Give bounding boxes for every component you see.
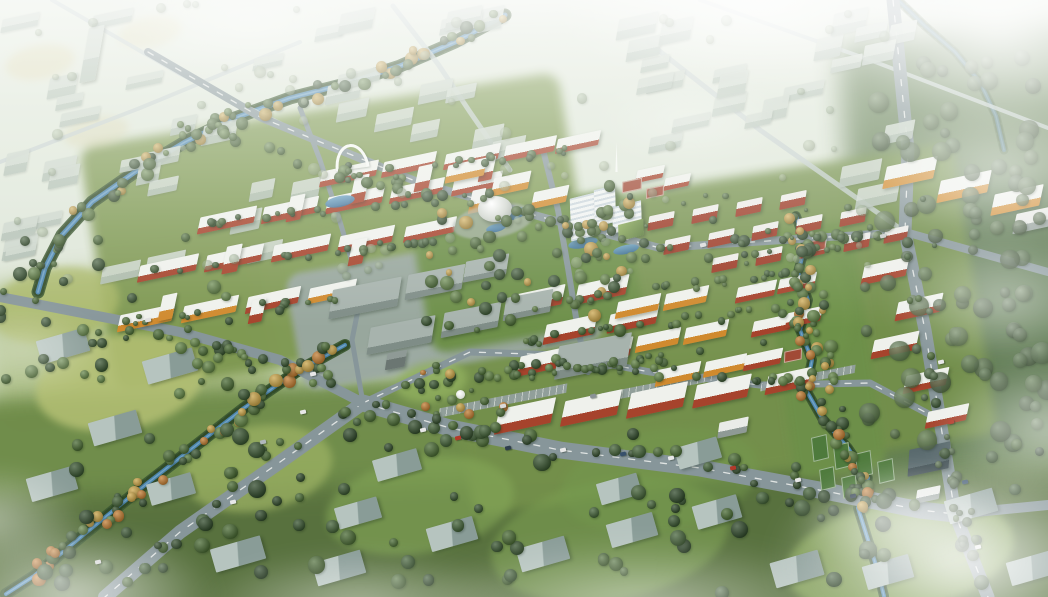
- tree: [229, 254, 239, 264]
- tree: [656, 244, 665, 253]
- tree: [616, 365, 622, 371]
- tree: [229, 133, 237, 141]
- tree: [639, 238, 649, 248]
- tree: [746, 306, 753, 313]
- tree: [446, 269, 452, 275]
- tree: [500, 127, 511, 138]
- tree: [356, 172, 362, 178]
- tree: [650, 364, 658, 372]
- tree: [795, 263, 805, 273]
- tree: [269, 374, 283, 388]
- tree: [464, 409, 474, 419]
- tree: [632, 445, 645, 458]
- tree: [864, 262, 870, 268]
- tree: [301, 98, 307, 104]
- tree: [198, 346, 208, 356]
- fog-cloud: [590, 75, 790, 165]
- tree: [474, 504, 483, 513]
- tree: [72, 439, 84, 451]
- tree: [200, 437, 208, 445]
- tree: [376, 181, 385, 190]
- tree: [305, 300, 310, 305]
- tree: [499, 181, 509, 191]
- tree: [224, 108, 232, 116]
- tree: [309, 379, 317, 387]
- intersection-north-stub: [352, 300, 363, 403]
- tree: [467, 298, 475, 306]
- tree: [493, 249, 506, 262]
- tree: [531, 359, 541, 369]
- tree: [401, 381, 410, 390]
- tree: [578, 327, 586, 335]
- tree: [435, 395, 441, 401]
- tree: [389, 538, 398, 547]
- tree: [856, 242, 862, 248]
- tree: [550, 330, 559, 339]
- tree: [652, 283, 660, 291]
- tree: [421, 402, 430, 411]
- tree: [756, 492, 768, 504]
- fog-cloud: [190, 550, 530, 597]
- tree: [632, 368, 639, 375]
- tree: [371, 202, 380, 211]
- tree: [589, 507, 600, 518]
- tree: [806, 350, 815, 359]
- tree: [601, 238, 610, 247]
- tree: [795, 307, 804, 316]
- tree: [469, 388, 474, 393]
- tree: [127, 492, 136, 501]
- tree: [497, 292, 507, 302]
- tree: [795, 336, 805, 346]
- tree: [305, 254, 312, 261]
- tree: [839, 406, 846, 413]
- tree: [448, 98, 455, 105]
- tree: [241, 354, 248, 361]
- tree: [0, 288, 7, 295]
- tree: [340, 530, 356, 546]
- tree: [459, 216, 472, 229]
- tree: [447, 395, 457, 405]
- tree: [577, 93, 587, 103]
- tree: [364, 410, 376, 422]
- tree: [552, 248, 562, 258]
- tree: [790, 236, 794, 240]
- tree: [483, 231, 496, 244]
- tree: [494, 374, 502, 382]
- tree: [238, 389, 250, 401]
- tree: [276, 438, 284, 446]
- tree: [603, 253, 610, 260]
- tree: [414, 378, 425, 389]
- tree: [158, 475, 168, 485]
- tree: [332, 297, 338, 303]
- tree: [314, 206, 321, 213]
- tree: [513, 371, 521, 379]
- fog-cloud: [0, 465, 90, 575]
- tree: [768, 377, 775, 384]
- tree: [552, 291, 562, 301]
- tree: [255, 510, 267, 522]
- tree: [692, 372, 701, 381]
- tree: [222, 524, 237, 539]
- tree: [227, 481, 238, 492]
- tree: [727, 311, 735, 319]
- tree: [500, 164, 511, 175]
- tree: [744, 261, 749, 266]
- tree: [259, 108, 272, 121]
- tree: [421, 316, 431, 326]
- tree: [141, 168, 153, 180]
- tree: [185, 315, 190, 320]
- tree: [273, 101, 283, 111]
- tree: [133, 321, 138, 326]
- tree: [859, 403, 879, 423]
- tree: [647, 500, 656, 509]
- tree: [136, 314, 142, 320]
- tree: [299, 116, 308, 125]
- tree: [391, 201, 400, 210]
- tree: [588, 297, 594, 303]
- tree: [890, 429, 900, 439]
- tree: [448, 421, 458, 431]
- tree: [272, 496, 282, 506]
- tree: [728, 453, 741, 466]
- tree: [437, 190, 448, 201]
- tree: [444, 321, 453, 330]
- tree: [185, 125, 191, 131]
- tree: [225, 317, 233, 325]
- tree: [382, 400, 390, 408]
- tree: [824, 340, 837, 353]
- tree: [609, 444, 621, 456]
- tree: [626, 252, 637, 263]
- tree: [14, 217, 22, 225]
- tree: [547, 162, 555, 170]
- tree: [511, 293, 521, 303]
- tree: [562, 145, 567, 150]
- tree: [238, 408, 246, 416]
- tree: [426, 251, 433, 258]
- tree: [833, 429, 844, 440]
- fog-cloud: [885, 230, 1048, 370]
- fog-cloud: [0, 305, 110, 395]
- tree: [807, 310, 820, 323]
- tree: [552, 370, 557, 375]
- tree: [287, 207, 295, 215]
- tree: [805, 284, 812, 291]
- tree: [481, 281, 491, 291]
- tree: [603, 292, 612, 301]
- tree: [181, 233, 190, 242]
- tree: [704, 253, 714, 263]
- tree: [224, 344, 234, 354]
- tree: [830, 377, 838, 385]
- tree: [387, 245, 393, 251]
- tree: [514, 216, 522, 224]
- tree: [275, 306, 284, 315]
- tree: [409, 46, 417, 54]
- tree: [581, 253, 591, 263]
- tree: [672, 320, 680, 328]
- tree: [192, 358, 203, 369]
- tree: [129, 159, 140, 170]
- tree: [93, 235, 103, 245]
- tree: [504, 366, 512, 374]
- tree: [340, 407, 350, 417]
- tree: [894, 387, 915, 408]
- tree: [813, 329, 820, 336]
- tree: [796, 246, 807, 257]
- tree: [844, 204, 852, 212]
- tree: [594, 290, 602, 298]
- tree: [577, 237, 584, 244]
- tree: [496, 408, 505, 417]
- tree: [403, 59, 413, 69]
- tree: [901, 368, 921, 388]
- tree: [450, 492, 458, 500]
- tree: [480, 397, 489, 406]
- tree: [479, 302, 492, 315]
- tree: [53, 234, 65, 246]
- tree: [718, 317, 725, 324]
- tree: [360, 249, 367, 256]
- tree: [817, 398, 825, 406]
- tree: [59, 277, 67, 285]
- tree: [342, 272, 351, 281]
- tree: [339, 80, 351, 92]
- tree: [722, 193, 728, 199]
- tree: [125, 326, 134, 335]
- tree: [275, 211, 280, 216]
- tree: [627, 428, 639, 440]
- tree: [264, 142, 275, 153]
- tree: [218, 218, 225, 225]
- tree: [765, 228, 770, 233]
- tree: [703, 193, 708, 198]
- tree: [618, 235, 626, 243]
- tree: [345, 177, 350, 182]
- tree: [221, 292, 231, 302]
- fog-cloud: [870, 95, 1048, 245]
- tree: [477, 245, 484, 252]
- tree: [526, 154, 533, 161]
- tree: [375, 262, 382, 269]
- tree: [609, 357, 618, 366]
- tree: [338, 483, 350, 495]
- tree: [827, 352, 833, 358]
- tree: [295, 493, 304, 502]
- tree: [709, 216, 717, 224]
- tree: [212, 341, 221, 350]
- tree: [387, 413, 400, 426]
- tree: [627, 268, 633, 274]
- tree: [285, 85, 295, 95]
- tree: [484, 261, 495, 272]
- tree: [174, 388, 185, 399]
- tree: [663, 281, 670, 288]
- tree: [738, 240, 745, 247]
- tree: [213, 353, 223, 363]
- tree: [826, 106, 834, 114]
- tree: [669, 488, 685, 504]
- tree: [613, 274, 621, 282]
- tree: [437, 208, 447, 218]
- tree: [731, 521, 748, 538]
- tree: [636, 321, 644, 329]
- tree: [693, 285, 700, 292]
- tree: [133, 478, 142, 487]
- tree: [143, 158, 155, 170]
- tree: [452, 519, 464, 531]
- tree: [212, 500, 220, 508]
- tree: [28, 267, 41, 280]
- tree: [29, 259, 37, 267]
- tree: [489, 154, 495, 160]
- tree: [202, 361, 215, 374]
- tree: [648, 188, 658, 198]
- tree: [501, 215, 512, 226]
- tree: [153, 329, 164, 340]
- tree: [805, 265, 815, 275]
- tree: [92, 258, 105, 271]
- tree: [603, 205, 612, 214]
- tree: [293, 519, 305, 531]
- tree: [614, 324, 626, 336]
- tree: [778, 376, 788, 386]
- tree: [750, 276, 757, 283]
- tree: [861, 325, 872, 336]
- tree: [821, 362, 829, 370]
- tree: [302, 360, 314, 372]
- tree: [769, 271, 775, 277]
- tree: [179, 457, 187, 465]
- tree: [794, 325, 801, 332]
- tree: [401, 201, 408, 208]
- tree: [77, 202, 87, 212]
- tree: [478, 367, 486, 375]
- tree: [248, 366, 256, 374]
- tree: [604, 180, 615, 191]
- aerial-masterplan-render: [0, 0, 1048, 597]
- tree: [781, 268, 790, 277]
- tree: [627, 193, 633, 199]
- tree: [122, 317, 130, 325]
- tree: [236, 117, 248, 129]
- tree: [366, 244, 376, 254]
- tree: [468, 157, 474, 163]
- tree: [248, 480, 266, 498]
- tree: [425, 275, 438, 288]
- tree: [695, 311, 702, 318]
- tree: [318, 170, 327, 179]
- tree: [385, 164, 394, 173]
- tree: [533, 454, 550, 471]
- tree: [52, 129, 62, 139]
- tree: [326, 520, 338, 532]
- tree: [69, 206, 78, 215]
- garden-gazebo: [456, 390, 465, 399]
- tree: [353, 418, 360, 425]
- tree: [67, 72, 76, 81]
- tree: [232, 428, 249, 445]
- tree: [703, 462, 713, 472]
- tree: [404, 240, 411, 247]
- tree: [448, 246, 457, 255]
- tree: [556, 148, 563, 155]
- tree: [343, 428, 356, 441]
- tree: [562, 222, 569, 229]
- tree: [805, 383, 812, 390]
- tree: [599, 221, 608, 230]
- tree: [258, 354, 268, 364]
- tree: [440, 276, 454, 290]
- tree: [52, 74, 58, 80]
- tree: [429, 380, 438, 389]
- tree: [517, 231, 527, 241]
- tree: [566, 296, 574, 304]
- tree: [681, 312, 689, 320]
- tree: [854, 237, 859, 242]
- tree: [796, 227, 804, 235]
- tree: [511, 206, 522, 217]
- tree: [32, 297, 39, 304]
- tree: [429, 238, 437, 246]
- tree: [197, 101, 205, 109]
- tree: [797, 88, 805, 96]
- tree: [323, 370, 333, 380]
- tree: [88, 18, 98, 28]
- tree: [490, 422, 501, 433]
- tree: [190, 338, 199, 347]
- tree: [245, 102, 251, 108]
- fog-cloud: [100, 0, 400, 80]
- tree: [587, 364, 594, 371]
- tree: [284, 252, 292, 260]
- tree: [420, 51, 430, 61]
- tree: [397, 188, 407, 198]
- tree: [450, 291, 462, 303]
- tree: [166, 335, 173, 342]
- tree: [499, 157, 507, 165]
- tree: [813, 234, 821, 242]
- tree: [631, 485, 646, 500]
- tree: [207, 280, 221, 294]
- tree: [37, 227, 47, 237]
- tree: [179, 131, 187, 139]
- fog-cloud: [795, 470, 1015, 570]
- tree: [778, 309, 787, 318]
- tree: [212, 262, 219, 269]
- tree: [460, 426, 474, 440]
- tree: [667, 244, 674, 251]
- tree: [571, 257, 581, 267]
- tree: [771, 304, 780, 313]
- tree: [803, 140, 814, 151]
- tree: [137, 490, 146, 499]
- tree: [445, 233, 455, 243]
- tree: [281, 358, 290, 367]
- tree: [511, 268, 523, 280]
